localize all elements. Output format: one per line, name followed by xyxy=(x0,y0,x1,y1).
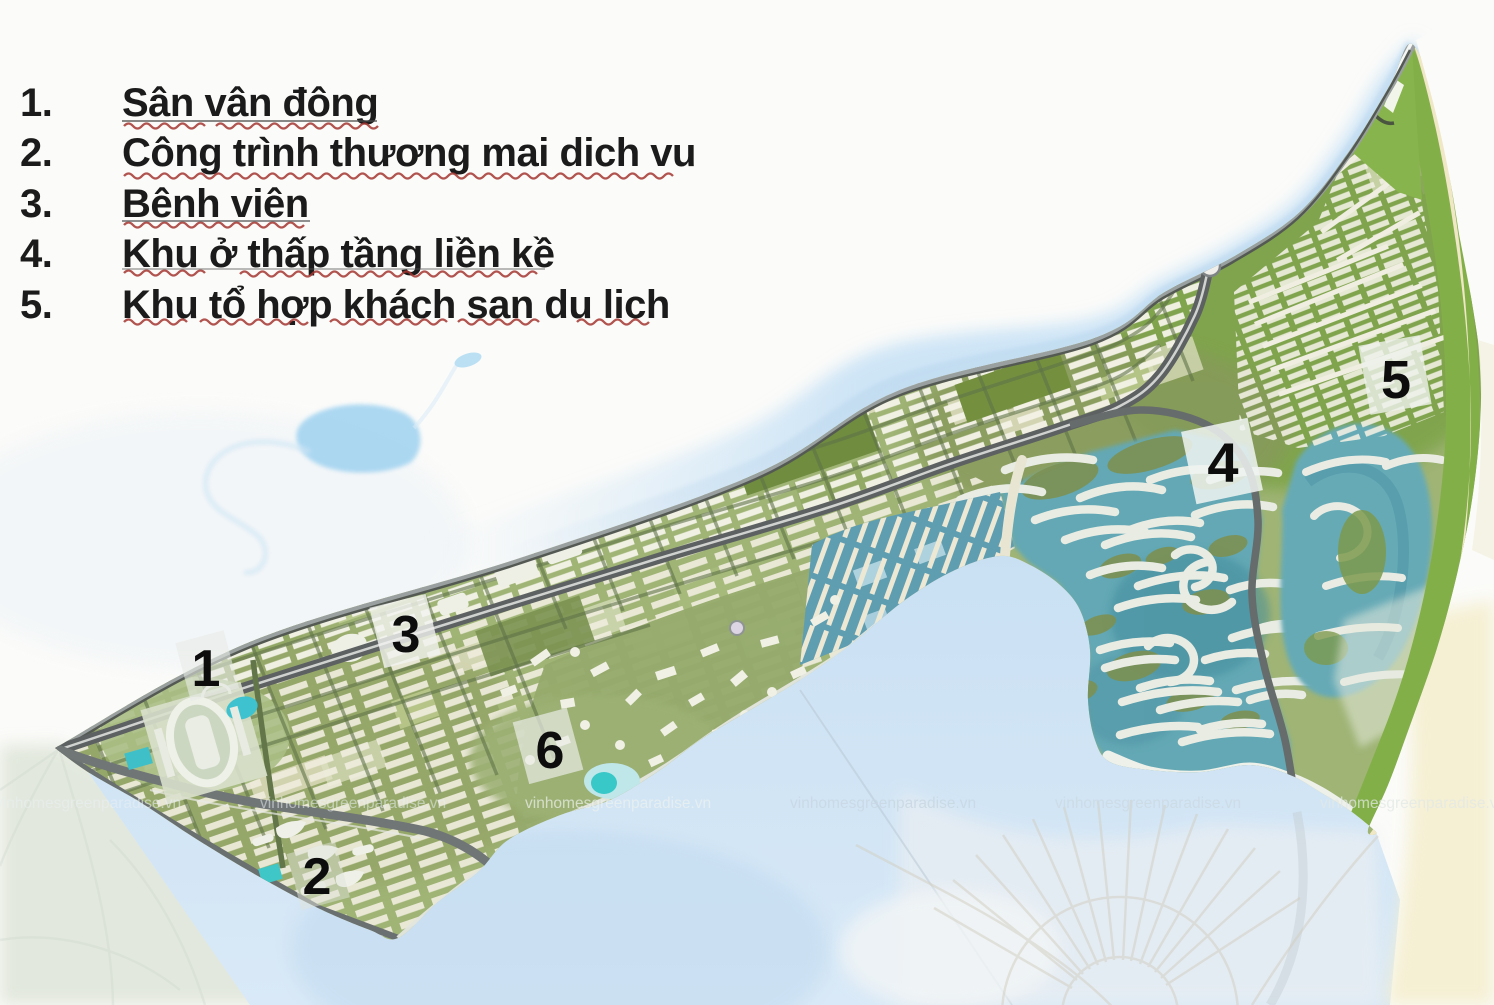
svg-text:4: 4 xyxy=(1207,431,1238,494)
svg-text:Công trình thương mai dich vu: Công trình thương mai dich vu xyxy=(122,131,696,175)
svg-text:vinhomesgreenparadise.vn: vinhomesgreenparadise.vn xyxy=(525,795,711,812)
svg-text:2.: 2. xyxy=(20,131,52,175)
svg-text:vinhomesgreenparadise.vn: vinhomesgreenparadise.vn xyxy=(1320,795,1494,812)
svg-text:vinhomesgreenparadise.vn: vinhomesgreenparadise.vn xyxy=(790,795,976,812)
svg-text:1: 1 xyxy=(192,640,221,698)
svg-text:vinhomesgreenparadise.vn: vinhomesgreenparadise.vn xyxy=(1055,795,1241,812)
svg-text:vinhomesgreenparadise.vn: vinhomesgreenparadise.vn xyxy=(260,795,446,812)
svg-text:Bênh viên: Bênh viên xyxy=(122,182,309,226)
svg-text:6: 6 xyxy=(536,722,565,780)
svg-text:2: 2 xyxy=(303,848,332,906)
svg-text:1.: 1. xyxy=(20,81,52,125)
svg-text:3: 3 xyxy=(392,606,421,664)
svg-text:5.: 5. xyxy=(20,283,52,327)
svg-text:5: 5 xyxy=(1381,350,1411,410)
svg-text:4.: 4. xyxy=(20,232,52,276)
svg-text:3.: 3. xyxy=(20,182,52,226)
svg-text:Sân vân đông: Sân vân đông xyxy=(122,81,378,125)
svg-text:vinhomesgreenparadise.vn: vinhomesgreenparadise.vn xyxy=(0,795,181,812)
